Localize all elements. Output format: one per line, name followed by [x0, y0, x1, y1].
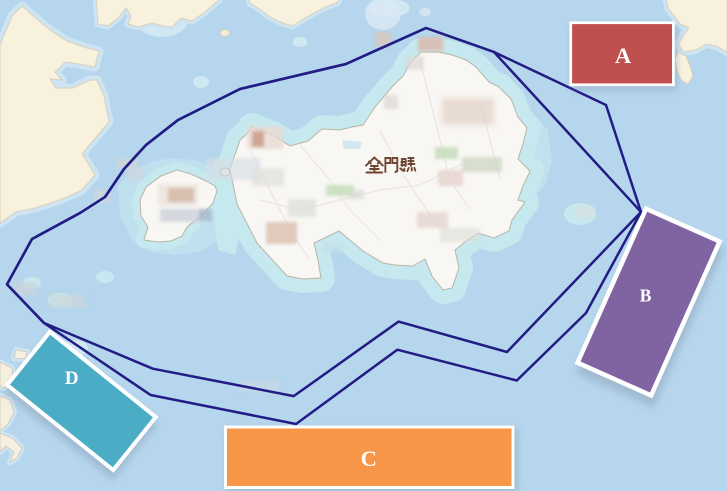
- svg-text:A: A: [615, 43, 632, 68]
- svg-text:D: D: [65, 368, 79, 389]
- svg-text:B: B: [640, 286, 652, 306]
- svg-text:C: C: [361, 446, 377, 471]
